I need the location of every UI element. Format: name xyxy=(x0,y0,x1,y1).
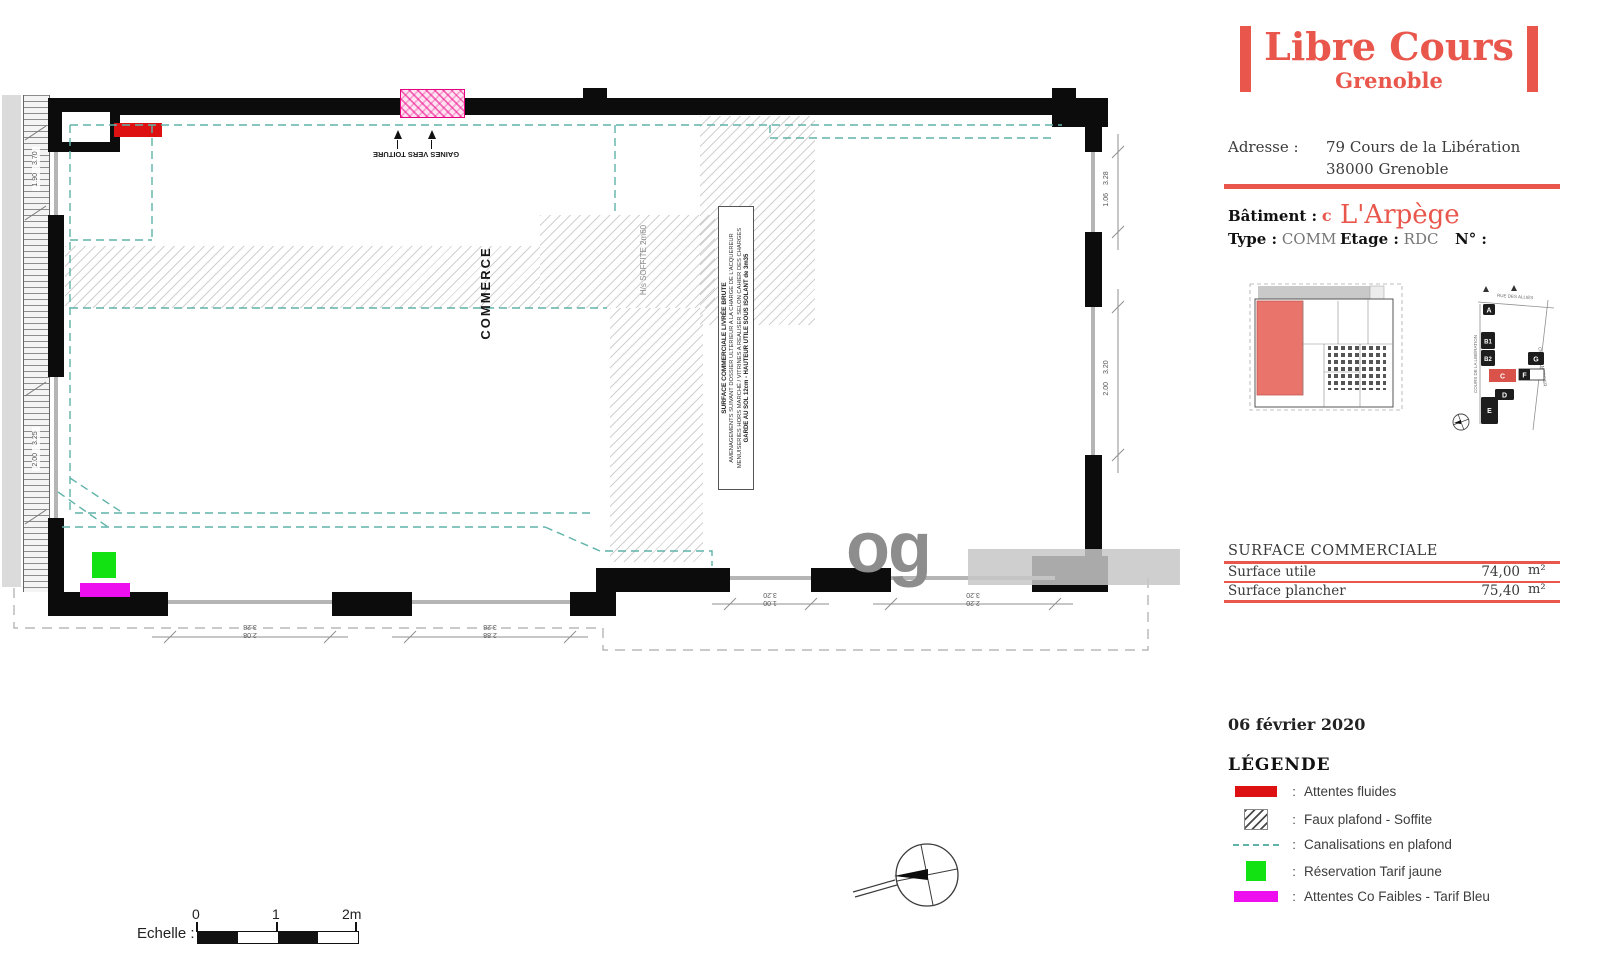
note-line: AMENAGEMENTS SUIVANT DOSSIER ULTERIEUR A… xyxy=(729,207,736,489)
key-plan-core xyxy=(1328,344,1386,390)
address-line1: 79 Cours de la Libération xyxy=(1326,138,1520,156)
surface-row-unit: m² xyxy=(1528,563,1546,578)
batiment-label: Bâtiment : xyxy=(1228,207,1317,225)
dimension-label: 2.083.28 xyxy=(226,622,274,638)
key-plan: RUE DES ALLIÉS COURS DE LA LIBÉRATION CH… xyxy=(1228,282,1558,447)
dimension-label: 2.003.25 xyxy=(32,427,40,471)
legend-label: Attentes fluides xyxy=(1304,784,1396,799)
address-label: Adresse : xyxy=(1228,138,1299,156)
legend-swatch-magenta-bar xyxy=(1234,891,1278,902)
legend-item-canalisations: : Canalisations en plafond xyxy=(1228,837,1452,852)
site-arrow-icon xyxy=(1483,286,1489,292)
watermark-fragment xyxy=(968,549,1180,585)
address-line2: 38000 Grenoble xyxy=(1326,160,1448,178)
note-line: SURFACE COMMERCIALE LIVRÉE BRUTE xyxy=(721,207,729,489)
scale-tick-2: 2m xyxy=(342,906,361,922)
street-top-label: RUE DES ALLIÉS xyxy=(1497,292,1534,301)
surface-row-value: 74,00 xyxy=(1460,564,1520,580)
dimension-label: 1.063.28 xyxy=(1103,165,1111,213)
type-value: COMM xyxy=(1282,230,1337,248)
surface-row-label: Surface utile xyxy=(1228,564,1316,580)
svg-text:C: C xyxy=(1500,374,1505,381)
legend-swatch-hatch-square xyxy=(1244,809,1268,830)
svg-text:A: A xyxy=(1486,308,1491,315)
duct-arrow-icon xyxy=(394,130,402,139)
numero-label: N° : xyxy=(1455,230,1487,248)
site-arrow-icon xyxy=(1511,285,1517,291)
table-rule xyxy=(1224,600,1560,603)
legend-label: Attentes Co Faibles - Tarif Bleu xyxy=(1304,889,1490,904)
note-line: GARDE AU SOL 12cm - HAUTEUR UTILE SOUS I… xyxy=(744,207,752,489)
legend-item-faux-plafond: : Faux plafond - Soffite xyxy=(1228,809,1432,830)
etage-row: Etage : RDC xyxy=(1340,230,1438,248)
dimension-label: 2.203.20 xyxy=(949,590,997,606)
legend-label: Réservation Tarif jaune xyxy=(1304,864,1442,879)
batiment-row: Bâtiment : c xyxy=(1228,206,1332,225)
svg-text:D: D xyxy=(1502,393,1507,400)
duct-arrow-leader xyxy=(431,140,432,149)
key-plan-compass xyxy=(1453,414,1469,430)
plan-linework xyxy=(0,0,1210,962)
etage-value: RDC xyxy=(1404,230,1439,248)
legend-item-attentes-fluides: : Attentes fluides xyxy=(1228,784,1396,799)
svg-text:E: E xyxy=(1487,408,1492,415)
legend-label: Canalisations en plafond xyxy=(1304,837,1452,852)
canalisations-dashed-lines xyxy=(58,125,1062,566)
soffite-height-label: H/s SOFFITE 2m60 xyxy=(639,205,651,315)
duct-arrow-leader xyxy=(397,140,398,149)
brand-bar-right xyxy=(1527,26,1538,92)
divider-rule xyxy=(1224,184,1560,189)
brand-title: Libre Cours xyxy=(1258,24,1520,69)
surface-table-title: SURFACE COMMERCIALE xyxy=(1228,543,1438,559)
brand-subtitle: Grenoble xyxy=(1258,68,1520,93)
legend-swatch-red-bar xyxy=(1235,786,1277,797)
room-label: COMMERCE xyxy=(478,238,498,348)
svg-text:F: F xyxy=(1522,373,1527,380)
note-box: SURFACE COMMERCIALE LIVRÉE BRUTE AMENAGE… xyxy=(718,206,758,490)
type-label: Type : xyxy=(1228,230,1277,248)
residence-name: L'Arpège xyxy=(1340,200,1460,230)
dimension-label: 1.003.20 xyxy=(746,590,794,606)
scale-tick-0: 0 xyxy=(192,906,200,922)
gaines-label: GAINES VERS TOITURE xyxy=(366,150,466,159)
svg-text:G: G xyxy=(1533,357,1539,364)
scale-label: Echelle : xyxy=(137,925,195,942)
svg-text:B2: B2 xyxy=(1484,357,1492,363)
legend-label: Faux plafond - Soffite xyxy=(1304,812,1432,827)
street-left-label: COURS DE LA LIBÉRATION xyxy=(1472,335,1478,393)
surface-row-value: 75,40 xyxy=(1460,583,1520,599)
legend-swatch-green-square xyxy=(1246,861,1266,881)
svg-text:B1: B1 xyxy=(1484,340,1492,346)
dimension-label: 2.003.20 xyxy=(1103,354,1111,402)
duct-arrow-icon xyxy=(428,130,436,139)
scale-tick-1: 1 xyxy=(272,906,280,922)
key-plan-highlight-unit xyxy=(1257,301,1303,395)
property-dashed-lines xyxy=(14,576,1148,650)
key-plan-neighbor xyxy=(1258,286,1370,299)
etage-label: Etage : xyxy=(1340,230,1399,248)
surface-row-label: Surface plancher xyxy=(1228,583,1346,599)
legend-item-reservation-tarif-jaune: : Réservation Tarif jaune xyxy=(1228,861,1442,881)
surface-row-unit: m² xyxy=(1528,582,1546,597)
brand-bar-left xyxy=(1240,26,1251,92)
dimension-label: 1.903.70 xyxy=(32,147,40,191)
note-line: MENUISERIES HORS MARCHÉ / VITRINES A REA… xyxy=(737,207,744,489)
legend-item-attentes-co-faibles: : Attentes Co Faibles - Tarif Bleu xyxy=(1228,889,1490,904)
scale-bar-segments xyxy=(197,931,359,944)
floor-plan: COMMERCE H/s SOFFITE 2m60 GAINES VERS TO… xyxy=(0,0,1210,962)
dimension-label: 2.883.28 xyxy=(466,622,514,638)
north-compass xyxy=(853,844,958,906)
plan-date: 06 février 2020 xyxy=(1228,715,1365,734)
type-row: Type : COMM xyxy=(1228,230,1336,248)
legend-title: LÉGENDE xyxy=(1228,755,1331,775)
floor-plan-sheet: COMMERCE H/s SOFFITE 2m60 GAINES VERS TO… xyxy=(0,0,1600,962)
legend-swatch-teal-dashed xyxy=(1233,844,1279,846)
batiment-value: c xyxy=(1322,206,1332,225)
site-buildings xyxy=(1481,304,1544,424)
watermark-text: og xyxy=(846,512,930,584)
